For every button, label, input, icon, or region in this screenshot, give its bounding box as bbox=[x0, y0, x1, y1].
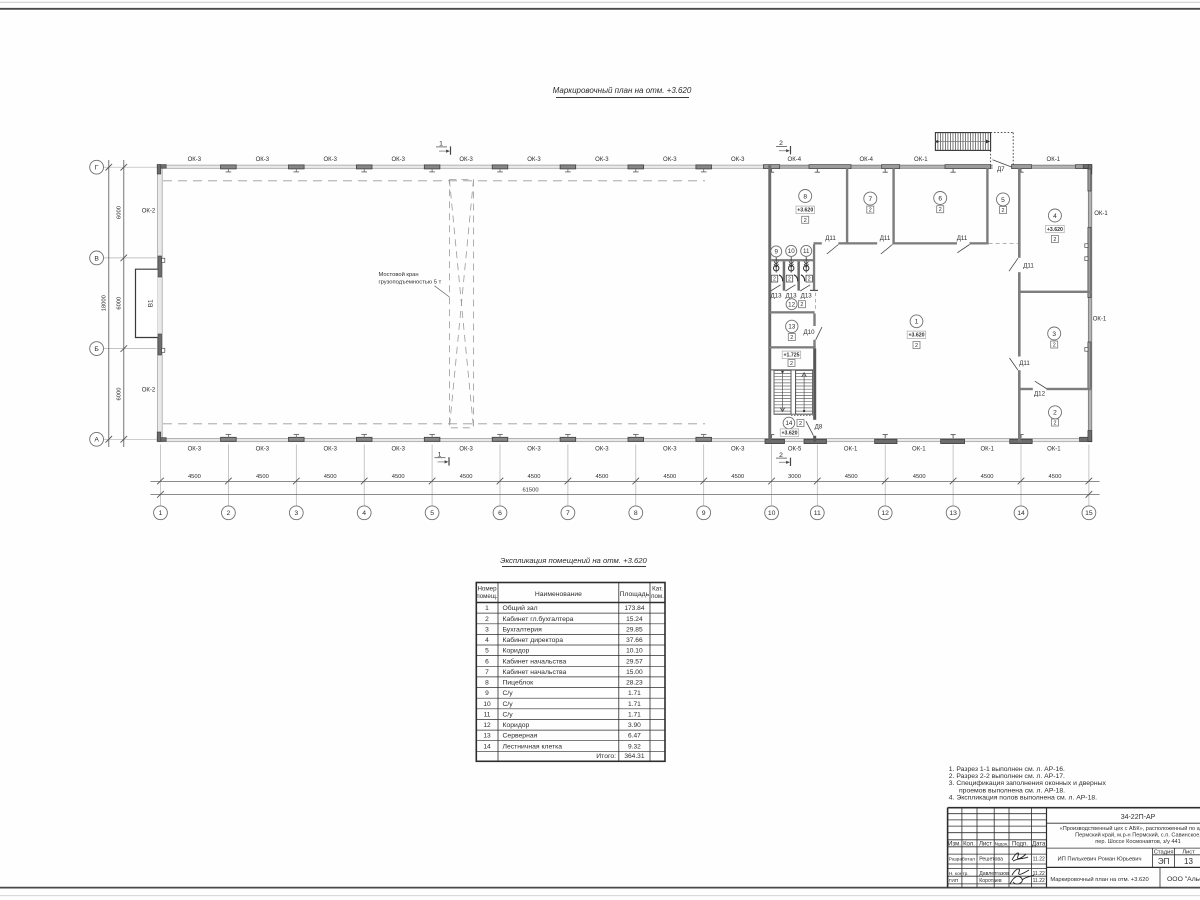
svg-text:9: 9 bbox=[485, 690, 489, 697]
svg-text:+3.620: +3.620 bbox=[1047, 227, 1063, 233]
svg-text:4500: 4500 bbox=[188, 474, 201, 480]
svg-text:5: 5 bbox=[1001, 197, 1005, 204]
svg-text:ОК-3: ОК-3 bbox=[663, 157, 677, 163]
svg-text:11: 11 bbox=[814, 510, 821, 517]
svg-text:2: 2 bbox=[227, 510, 231, 517]
svg-text:С/у: С/у bbox=[503, 711, 514, 718]
svg-text:В1: В1 bbox=[148, 299, 155, 307]
svg-text:Кабинет начальства: Кабинет начальства bbox=[503, 657, 567, 665]
svg-text:12: 12 bbox=[788, 301, 795, 308]
svg-text:2: 2 bbox=[869, 208, 872, 214]
svg-text:Коротаев: Коротаев bbox=[979, 878, 1002, 884]
svg-text:11: 11 bbox=[803, 248, 810, 255]
svg-text:4500: 4500 bbox=[1049, 474, 1062, 480]
svg-text:Д10: Д10 bbox=[803, 329, 815, 336]
svg-text:ОК-1: ОК-1 bbox=[844, 447, 858, 453]
svg-text:Д11: Д11 bbox=[880, 235, 891, 242]
svg-text:8: 8 bbox=[485, 680, 489, 687]
svg-text:9.32: 9.32 bbox=[628, 743, 641, 750]
svg-text:Г: Г bbox=[95, 165, 99, 172]
svg-text:2: 2 bbox=[485, 616, 489, 623]
svg-text:№док.: №док. bbox=[994, 841, 1008, 847]
svg-text:6000: 6000 bbox=[117, 206, 123, 219]
svg-text:А: А bbox=[94, 437, 99, 444]
svg-text:28.23: 28.23 bbox=[626, 680, 643, 687]
svg-text:Площадь: Площадь bbox=[620, 591, 650, 598]
svg-text:ОК-3: ОК-3 bbox=[391, 447, 405, 453]
svg-text:проемов выполнена см. л. АР-18: проемов выполнена см. л. АР-18. bbox=[959, 787, 1065, 794]
svg-text:Стадия: Стадия bbox=[1154, 850, 1174, 856]
svg-text:2. Разрез 2-2 выполнен см. л.: 2. Разрез 2-2 выполнен см. л. АР-17. bbox=[949, 773, 1065, 780]
svg-text:ОК-3: ОК-3 bbox=[731, 157, 745, 163]
svg-text:Д12: Д12 bbox=[1034, 391, 1046, 398]
svg-text:2: 2 bbox=[1002, 208, 1005, 214]
svg-text:Коридор: Коридор bbox=[503, 722, 530, 729]
svg-text:4500: 4500 bbox=[460, 474, 473, 480]
svg-text:+1.725: +1.725 bbox=[783, 353, 799, 359]
svg-text:Кол.: Кол. bbox=[963, 841, 975, 847]
svg-text:61500: 61500 bbox=[522, 488, 538, 494]
svg-text:4500: 4500 bbox=[913, 474, 926, 480]
svg-text:6.47: 6.47 bbox=[628, 733, 641, 740]
svg-text:12: 12 bbox=[483, 722, 491, 729]
svg-text:4: 4 bbox=[485, 637, 489, 644]
svg-text:ОК-3: ОК-3 bbox=[391, 157, 405, 163]
svg-text:2: 2 bbox=[1054, 421, 1057, 427]
svg-text:ОК-3: ОК-3 bbox=[256, 447, 270, 453]
svg-text:9: 9 bbox=[702, 510, 706, 517]
svg-text:2: 2 bbox=[808, 277, 811, 283]
svg-text:5: 5 bbox=[485, 648, 489, 655]
svg-text:Мостовой кран: Мостовой кран bbox=[379, 271, 419, 278]
svg-text:10: 10 bbox=[483, 701, 491, 708]
svg-text:4. Экспликация полов выполнена: 4. Экспликация полов выполнена см. л. АР… bbox=[949, 795, 1097, 802]
svg-text:13: 13 bbox=[483, 733, 491, 740]
svg-text:ОК-3: ОК-3 bbox=[527, 157, 541, 163]
svg-text:С/у: С/у bbox=[503, 690, 514, 697]
svg-text:Д8: Д8 bbox=[815, 424, 823, 431]
svg-text:6: 6 bbox=[938, 195, 942, 202]
svg-text:+3.620: +3.620 bbox=[797, 208, 813, 214]
svg-text:Экспликация помещений на отм.: Экспликация помещений на отм. +3.620 bbox=[500, 556, 647, 565]
svg-text:2: 2 bbox=[1053, 343, 1056, 349]
svg-text:Номер: Номер bbox=[477, 586, 497, 593]
svg-text:Решетова: Решетова bbox=[979, 856, 1003, 862]
svg-text:2: 2 bbox=[804, 218, 807, 224]
svg-text:Д11: Д11 bbox=[1023, 263, 1034, 270]
svg-text:ОК-1: ОК-1 bbox=[1093, 317, 1107, 323]
svg-text:4500: 4500 bbox=[595, 474, 608, 480]
svg-text:3: 3 bbox=[1052, 331, 1056, 338]
svg-text:11: 11 bbox=[484, 711, 491, 718]
svg-text:Д7: Д7 bbox=[997, 166, 1005, 173]
svg-text:13: 13 bbox=[949, 510, 957, 517]
svg-text:2: 2 bbox=[915, 343, 918, 349]
svg-text:10: 10 bbox=[788, 248, 795, 255]
svg-text:ОК-3: ОК-3 bbox=[256, 157, 270, 163]
svg-text:грузоподъемностью 5 т: грузоподъемностью 5 т bbox=[379, 280, 442, 286]
svg-text:1: 1 bbox=[915, 319, 919, 326]
svg-text:4: 4 bbox=[1053, 213, 1057, 220]
svg-text:1.71: 1.71 bbox=[628, 690, 641, 697]
svg-text:Пермский край, м.р-н Пермский,: Пермский край, м.р-н Пермский, с.п. Сави… bbox=[1075, 832, 1200, 839]
svg-text:29.85: 29.85 bbox=[626, 626, 643, 633]
svg-text:2: 2 bbox=[799, 421, 802, 427]
svg-text:ОК-3: ОК-3 bbox=[595, 447, 609, 453]
svg-text:ОК-1: ОК-1 bbox=[914, 157, 928, 163]
svg-text:15.24: 15.24 bbox=[626, 616, 643, 623]
svg-text:6: 6 bbox=[485, 658, 489, 665]
svg-text:Подп.: Подп. bbox=[1012, 841, 1028, 847]
svg-text:10: 10 bbox=[768, 510, 776, 517]
svg-text:4: 4 bbox=[362, 510, 366, 517]
svg-text:ОК-3: ОК-3 bbox=[188, 447, 202, 453]
svg-text:Д11: Д11 bbox=[1019, 360, 1030, 367]
svg-text:34-22П-АР: 34-22П-АР bbox=[1121, 814, 1156, 821]
svg-text:Наименование: Наименование bbox=[535, 591, 582, 598]
svg-text:ОК-5: ОК-5 bbox=[788, 447, 802, 453]
svg-text:3: 3 bbox=[485, 626, 489, 633]
svg-text:11.22: 11.22 bbox=[1033, 871, 1045, 877]
svg-text:помещ.: помещ. bbox=[476, 593, 498, 600]
svg-text:3.90: 3.90 bbox=[628, 722, 641, 729]
svg-text:2: 2 bbox=[788, 277, 791, 283]
svg-text:ОК-4: ОК-4 bbox=[788, 157, 802, 163]
svg-text:7: 7 bbox=[485, 669, 489, 676]
svg-text:ОК-1: ОК-1 bbox=[980, 447, 994, 453]
svg-text:6: 6 bbox=[498, 510, 502, 517]
svg-text:Лестничная клетка: Лестничная клетка bbox=[503, 743, 563, 750]
svg-text:10.10: 10.10 bbox=[626, 648, 643, 655]
svg-text:ОК-1: ОК-1 bbox=[912, 447, 926, 453]
svg-text:8: 8 bbox=[634, 510, 638, 517]
svg-text:ОК-1: ОК-1 bbox=[1047, 447, 1061, 453]
svg-text:+3.620: +3.620 bbox=[908, 333, 924, 339]
svg-text:14: 14 bbox=[1017, 510, 1025, 517]
svg-text:5: 5 bbox=[430, 510, 434, 517]
svg-text:ОК-3: ОК-3 bbox=[323, 157, 337, 163]
svg-text:18000: 18000 bbox=[102, 295, 108, 311]
svg-text:Кабинет директора: Кабинет директора bbox=[503, 636, 564, 644]
svg-text:«Производственный цех с АБК»,: «Производственный цех с АБК», расположен… bbox=[1060, 825, 1200, 832]
svg-text:2: 2 bbox=[800, 302, 803, 308]
svg-text:пер. Шоссе Космонавтов, з/у 44: пер. Шоссе Космонавтов, з/у 441 bbox=[1095, 839, 1181, 845]
svg-text:3: 3 bbox=[294, 510, 298, 517]
svg-text:Н. контр.: Н. контр. bbox=[949, 871, 969, 877]
svg-text:364.31: 364.31 bbox=[624, 753, 645, 760]
svg-text:Разработал: Разработал bbox=[949, 856, 975, 862]
svg-text:1: 1 bbox=[485, 605, 489, 612]
svg-text:Кабинет гл.бухгалтера: Кабинет гл.бухгалтера bbox=[503, 615, 574, 623]
svg-text:Дата: Дата bbox=[1032, 841, 1046, 847]
svg-text:ЭП: ЭП bbox=[1158, 857, 1170, 866]
svg-text:Пицеблок: Пицеблок bbox=[503, 679, 534, 687]
svg-text:4500: 4500 bbox=[731, 474, 744, 480]
svg-text:14: 14 bbox=[785, 420, 792, 427]
svg-text:ОК-3: ОК-3 bbox=[527, 447, 541, 453]
svg-text:2: 2 bbox=[1053, 237, 1056, 243]
svg-text:Д11: Д11 bbox=[825, 235, 836, 242]
svg-text:15.00: 15.00 bbox=[626, 669, 643, 676]
svg-text:9: 9 bbox=[774, 249, 778, 256]
svg-text:14: 14 bbox=[483, 743, 491, 750]
svg-text:Б: Б bbox=[94, 346, 99, 353]
svg-text:3000: 3000 bbox=[788, 474, 801, 480]
svg-text:ОК-3: ОК-3 bbox=[595, 157, 609, 163]
svg-text:ОК-1: ОК-1 bbox=[1047, 157, 1061, 163]
svg-text:2: 2 bbox=[790, 361, 793, 367]
svg-text:2: 2 bbox=[773, 277, 776, 283]
svg-text:пом.: пом. bbox=[651, 593, 664, 600]
svg-text:3. Спецификация заполнения око: 3. Спецификация заполнения оконных и две… bbox=[949, 780, 1107, 787]
svg-text:6000: 6000 bbox=[117, 297, 123, 310]
svg-text:Изм.: Изм. bbox=[948, 841, 961, 847]
svg-text:4500: 4500 bbox=[981, 474, 994, 480]
svg-text:Коридор: Коридор bbox=[503, 648, 530, 655]
svg-text:ОК-2: ОК-2 bbox=[142, 388, 156, 394]
svg-text:ОК-3: ОК-3 bbox=[459, 157, 473, 163]
svg-text:+3.620: +3.620 bbox=[781, 431, 797, 437]
svg-text:Бухгалтерия: Бухгалтерия bbox=[503, 626, 543, 633]
svg-text:7: 7 bbox=[566, 510, 570, 517]
svg-text:173.84: 173.84 bbox=[624, 605, 645, 612]
svg-text:2: 2 bbox=[790, 335, 793, 341]
svg-text:Давлетгазов: Давлетгазов bbox=[979, 871, 1009, 877]
svg-text:Итого:: Итого: bbox=[596, 753, 616, 760]
svg-text:ОК-3: ОК-3 bbox=[323, 447, 337, 453]
svg-text:Д13: Д13 bbox=[801, 293, 813, 300]
svg-text:1: 1 bbox=[159, 510, 163, 517]
svg-text:1.71: 1.71 bbox=[628, 711, 641, 718]
svg-text:4500: 4500 bbox=[663, 474, 676, 480]
svg-text:1.71: 1.71 bbox=[628, 701, 641, 708]
svg-text:11.22: 11.22 bbox=[1033, 856, 1045, 862]
svg-text:В: В bbox=[94, 255, 99, 262]
svg-text:2: 2 bbox=[939, 207, 942, 213]
svg-text:6000: 6000 bbox=[117, 388, 123, 401]
svg-text:4500: 4500 bbox=[324, 474, 337, 480]
svg-text:4500: 4500 bbox=[528, 474, 541, 480]
svg-text:Кат.: Кат. bbox=[652, 586, 663, 593]
svg-text:1. Разрез 1-1 выполнен см. л.: 1. Разрез 1-1 выполнен см. л. АР-16. bbox=[949, 766, 1065, 773]
svg-text:Лист: Лист bbox=[1182, 850, 1195, 856]
svg-text:ОК-3: ОК-3 bbox=[188, 157, 202, 163]
svg-text:ИП Пилькевич Роман Юрьевич: ИП Пилькевич Роман Юрьевич bbox=[1057, 857, 1141, 863]
svg-text:13: 13 bbox=[1184, 857, 1193, 866]
svg-text:ООО "Альфа: ООО "Альфа bbox=[1167, 876, 1200, 883]
svg-text:С/у: С/у bbox=[503, 701, 514, 708]
svg-text:ОК-3: ОК-3 bbox=[731, 447, 745, 453]
svg-text:13: 13 bbox=[788, 324, 796, 331]
svg-text:29.57: 29.57 bbox=[626, 658, 643, 665]
svg-text:ОК-1: ОК-1 bbox=[1094, 211, 1108, 217]
svg-text:Маркировочный план на отм. +3: Маркировочный план на отм. +3.620 bbox=[553, 86, 692, 95]
svg-text:4500: 4500 bbox=[392, 474, 405, 480]
svg-text:8: 8 bbox=[803, 193, 807, 200]
svg-text:12: 12 bbox=[881, 510, 889, 517]
svg-text:7: 7 bbox=[868, 196, 872, 203]
svg-text:4500: 4500 bbox=[256, 474, 269, 480]
svg-text:ОК-4: ОК-4 bbox=[859, 157, 873, 163]
svg-text:Лист: Лист bbox=[979, 841, 992, 847]
svg-text:ОК-3: ОК-3 bbox=[459, 447, 473, 453]
svg-text:Серверная: Серверная bbox=[503, 733, 538, 740]
svg-text:2: 2 bbox=[1053, 410, 1057, 417]
svg-text:4500: 4500 bbox=[845, 474, 858, 480]
svg-text:11.22: 11.22 bbox=[1033, 878, 1045, 884]
svg-text:Д13: Д13 bbox=[770, 293, 782, 300]
svg-text:ОК-3: ОК-3 bbox=[663, 447, 677, 453]
svg-text:Общий зал: Общий зал bbox=[503, 604, 538, 612]
svg-text:Кабинет начальства: Кабинет начальства bbox=[503, 668, 567, 676]
svg-text:37.66: 37.66 bbox=[626, 637, 643, 644]
svg-text:ОК-2: ОК-2 bbox=[142, 209, 156, 215]
svg-text:Маркировочный план на отм. +3.: Маркировочный план на отм. +3.620 bbox=[1050, 876, 1148, 883]
svg-text:ГИП: ГИП bbox=[949, 878, 959, 884]
svg-text:Д11: Д11 bbox=[957, 235, 968, 242]
svg-text:15: 15 bbox=[1085, 510, 1093, 517]
